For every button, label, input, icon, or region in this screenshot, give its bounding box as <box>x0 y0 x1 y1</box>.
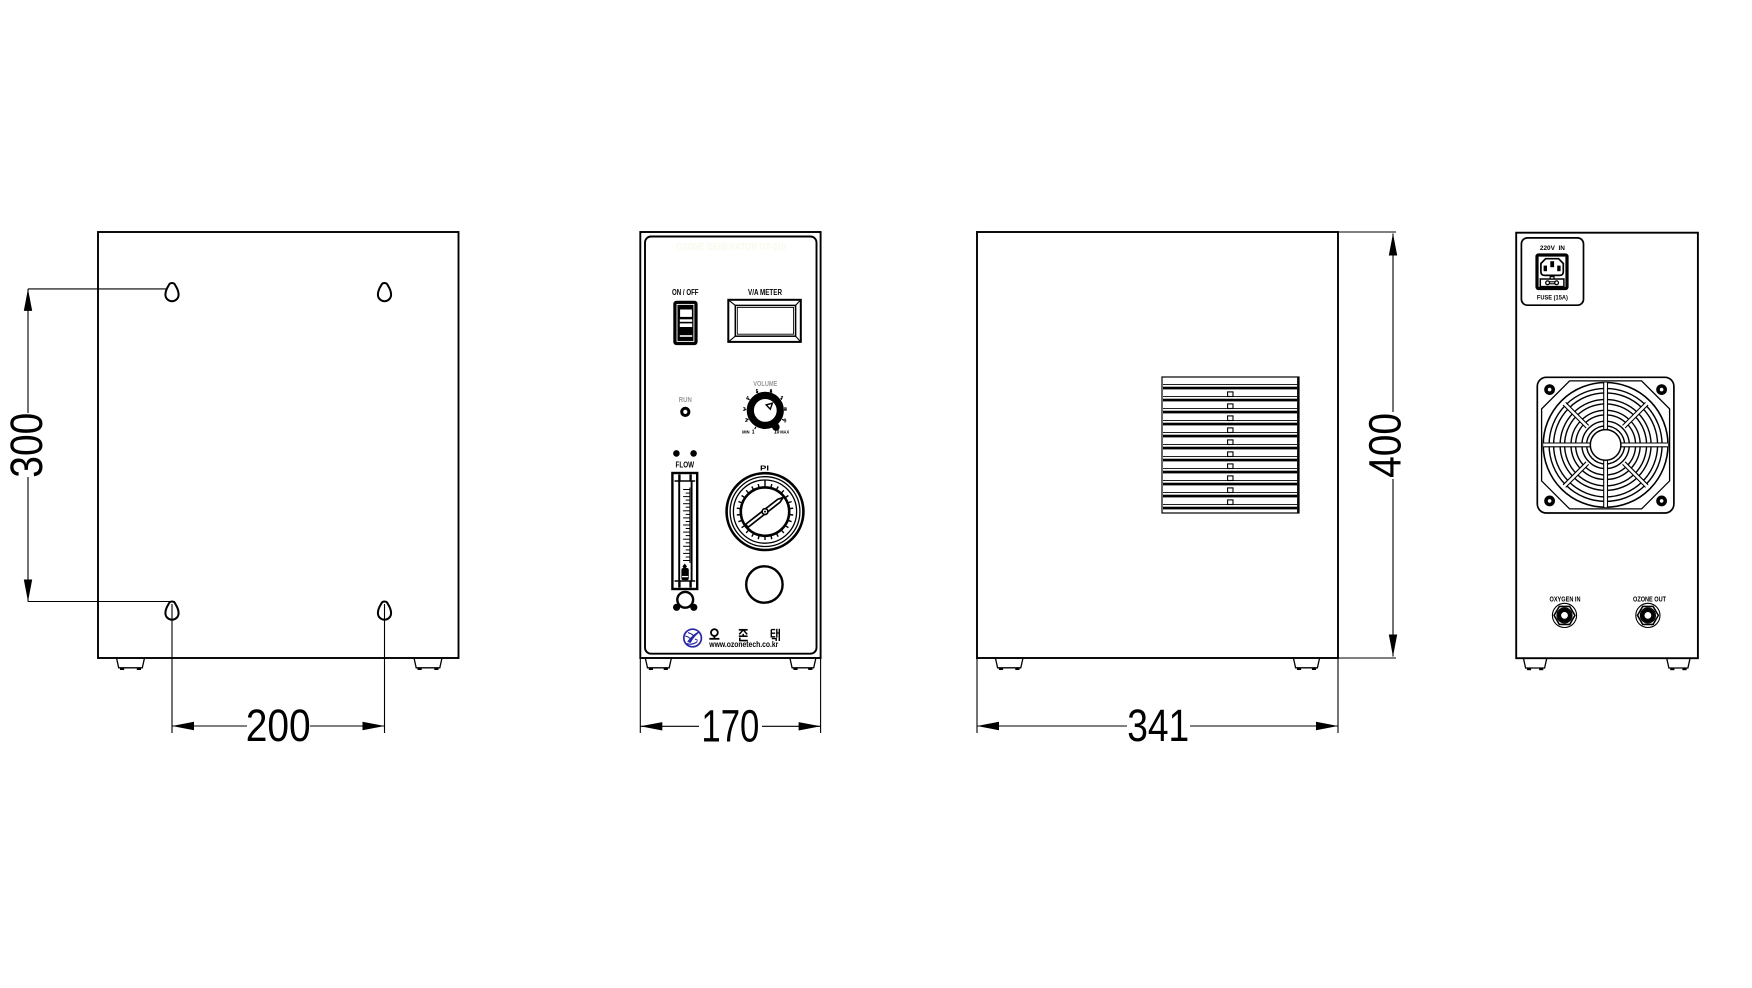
svg-text:3: 3 <box>743 407 746 413</box>
svg-text:4: 4 <box>746 396 749 402</box>
svg-text:RUN: RUN <box>679 397 692 404</box>
svg-text:220V IN: 220V IN <box>1540 245 1565 252</box>
svg-text:9: 9 <box>784 419 787 425</box>
svg-text:1: 1 <box>752 429 755 435</box>
svg-text:ON / OFF: ON / OFF <box>672 288 699 297</box>
svg-text:6: 6 <box>770 389 773 395</box>
svg-text:V/A METER: V/A METER <box>748 288 782 297</box>
svg-text:www.ozonetech.co.kr: www.ozonetech.co.kr <box>709 639 779 649</box>
svg-text:170: 170 <box>701 700 759 751</box>
svg-text:2: 2 <box>745 418 748 424</box>
svg-text:OZONE GENERATOR OT-016: OZONE GENERATOR OT-016 <box>676 241 786 253</box>
svg-text:FUSE (15A): FUSE (15A) <box>1537 295 1568 302</box>
svg-text:341: 341 <box>1127 700 1189 751</box>
svg-text:PI: PI <box>760 464 769 473</box>
svg-text:OZONE OUT: OZONE OUT <box>1633 597 1667 604</box>
svg-text:FLOW: FLOW <box>676 460 695 469</box>
svg-text:MIN: MIN <box>742 429 750 434</box>
svg-text:10: 10 <box>774 429 780 435</box>
svg-text:8: 8 <box>784 407 787 413</box>
svg-text:MAX: MAX <box>780 429 790 434</box>
svg-text:VOLUME: VOLUME <box>753 379 777 388</box>
svg-text:OXYGEN IN: OXYGEN IN <box>1550 597 1581 604</box>
svg-text:7: 7 <box>781 396 784 402</box>
svg-text:300: 300 <box>1 413 52 478</box>
svg-text:5: 5 <box>756 389 759 395</box>
svg-text:400: 400 <box>1360 413 1411 478</box>
svg-text:200: 200 <box>246 700 311 751</box>
